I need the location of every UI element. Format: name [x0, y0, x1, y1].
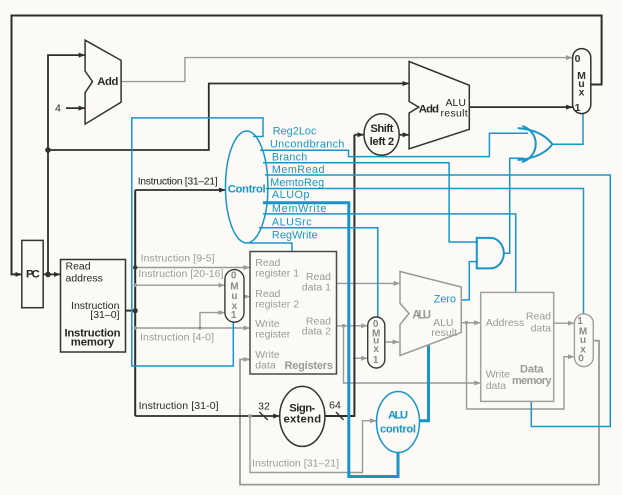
svg-text:1: 1	[577, 316, 583, 327]
svg-text:Address: Address	[486, 317, 525, 329]
svg-text:Branch: Branch	[272, 152, 307, 164]
svg-text:Instruction [4-0]: Instruction [4-0]	[140, 332, 214, 344]
svg-text:Instruction [31–21]: Instruction [31–21]	[252, 458, 339, 470]
svg-text:data 1: data 1	[302, 281, 331, 293]
svg-text:data: data	[255, 359, 276, 371]
svg-text:0: 0	[575, 53, 581, 65]
svg-text:0: 0	[578, 354, 584, 365]
svg-text:left 2: left 2	[370, 136, 395, 148]
svg-text:Read: Read	[526, 310, 551, 322]
svg-text:Instruction [31-0]: Instruction [31-0]	[139, 400, 219, 412]
svg-text:result: result	[431, 327, 457, 339]
svg-text:memory: memory	[71, 337, 115, 349]
svg-text:extend: extend	[284, 414, 322, 426]
svg-text:x: x	[579, 87, 585, 99]
svg-text:Shift: Shift	[370, 123, 393, 135]
svg-text:Read: Read	[66, 260, 91, 272]
svg-text:Instruction [9-5]: Instruction [9-5]	[141, 253, 215, 265]
svg-text:register 2: register 2	[255, 298, 299, 310]
svg-text:64: 64	[329, 400, 341, 412]
svg-text:control: control	[380, 423, 416, 435]
svg-text:ALU: ALU	[412, 309, 431, 321]
svg-text:1: 1	[231, 310, 237, 321]
svg-text:MemtoReg: MemtoReg	[270, 177, 324, 189]
svg-text:MemWrite: MemWrite	[272, 203, 327, 215]
svg-text:Control: Control	[228, 183, 266, 195]
svg-text:0: 0	[231, 271, 237, 282]
svg-text:Instruction [20-16]: Instruction [20-16]	[138, 268, 223, 280]
svg-text:x: x	[373, 344, 379, 355]
svg-text:RegWrite: RegWrite	[272, 230, 318, 242]
svg-text:data: data	[486, 380, 507, 392]
svg-text:MemRead: MemRead	[272, 164, 325, 176]
svg-text:memory: memory	[512, 375, 552, 387]
svg-text:Write: Write	[486, 369, 510, 381]
svg-text:data: data	[531, 322, 552, 334]
svg-text:Data: Data	[520, 364, 544, 376]
svg-text:32: 32	[258, 400, 270, 412]
svg-text:1: 1	[575, 102, 581, 114]
svg-text:Uncondbranch: Uncondbranch	[270, 139, 344, 151]
svg-text:result: result	[441, 107, 468, 119]
svg-text:1: 1	[373, 355, 379, 366]
svg-text:Registers: Registers	[285, 360, 334, 372]
svg-text:Zero: Zero	[434, 294, 456, 306]
svg-text:register: register	[255, 328, 291, 340]
svg-text:[31–0]: [31–0]	[90, 309, 119, 321]
svg-text:register 1: register 1	[255, 268, 299, 280]
svg-text:data 2: data 2	[302, 326, 331, 338]
svg-text:ALUOp: ALUOp	[272, 189, 310, 201]
svg-text:address: address	[66, 273, 103, 285]
svg-text:4: 4	[55, 103, 61, 115]
svg-text:Add: Add	[419, 104, 439, 116]
svg-text:Reg2Loc: Reg2Loc	[273, 126, 317, 138]
svg-text:Instruction [31–21]: Instruction [31–21]	[138, 176, 218, 188]
svg-text:ALU: ALU	[388, 410, 408, 422]
svg-text:Add: Add	[97, 76, 118, 88]
svg-text:ALUSrc: ALUSrc	[272, 216, 312, 228]
svg-text:PC: PC	[26, 269, 40, 281]
